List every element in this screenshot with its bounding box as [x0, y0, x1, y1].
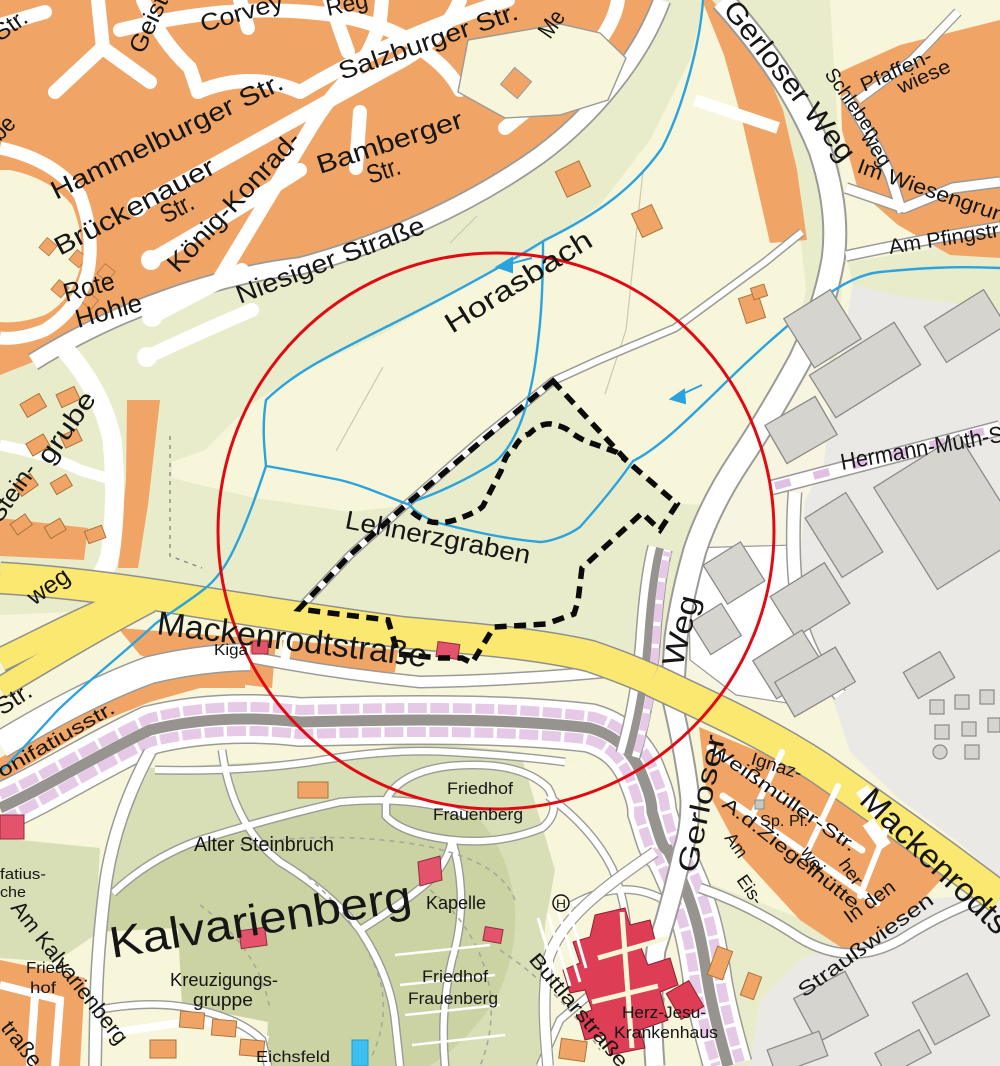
svg-text:H: H — [556, 897, 566, 911]
svg-text:Sp. Pl.: Sp. Pl. — [760, 813, 808, 830]
svg-text:Eichsfeld: Eichsfeld — [256, 1049, 330, 1066]
svg-text:Alter Steinbruch: Alter Steinbruch — [194, 834, 334, 856]
svg-text:Krankenhaus: Krankenhaus — [614, 1023, 718, 1042]
svg-text:fatius-: fatius- — [0, 866, 46, 883]
svg-text:Frauenberg: Frauenberg — [433, 805, 523, 824]
svg-text:Friedhof: Friedhof — [422, 967, 488, 986]
svg-text:Kiga: Kiga — [214, 642, 248, 659]
svg-text:Friedhof: Friedhof — [447, 779, 513, 798]
svg-text:Frauenberg: Frauenberg — [408, 989, 498, 1008]
svg-text:Kapelle: Kapelle — [426, 893, 486, 913]
svg-text:Kreuzigungs-: Kreuzigungs- — [170, 970, 278, 990]
svg-text:Herz-Jesu-: Herz-Jesu- — [622, 1003, 706, 1022]
svg-text:hof: hof — [30, 980, 57, 997]
svg-text:gruppe: gruppe — [193, 990, 253, 1010]
